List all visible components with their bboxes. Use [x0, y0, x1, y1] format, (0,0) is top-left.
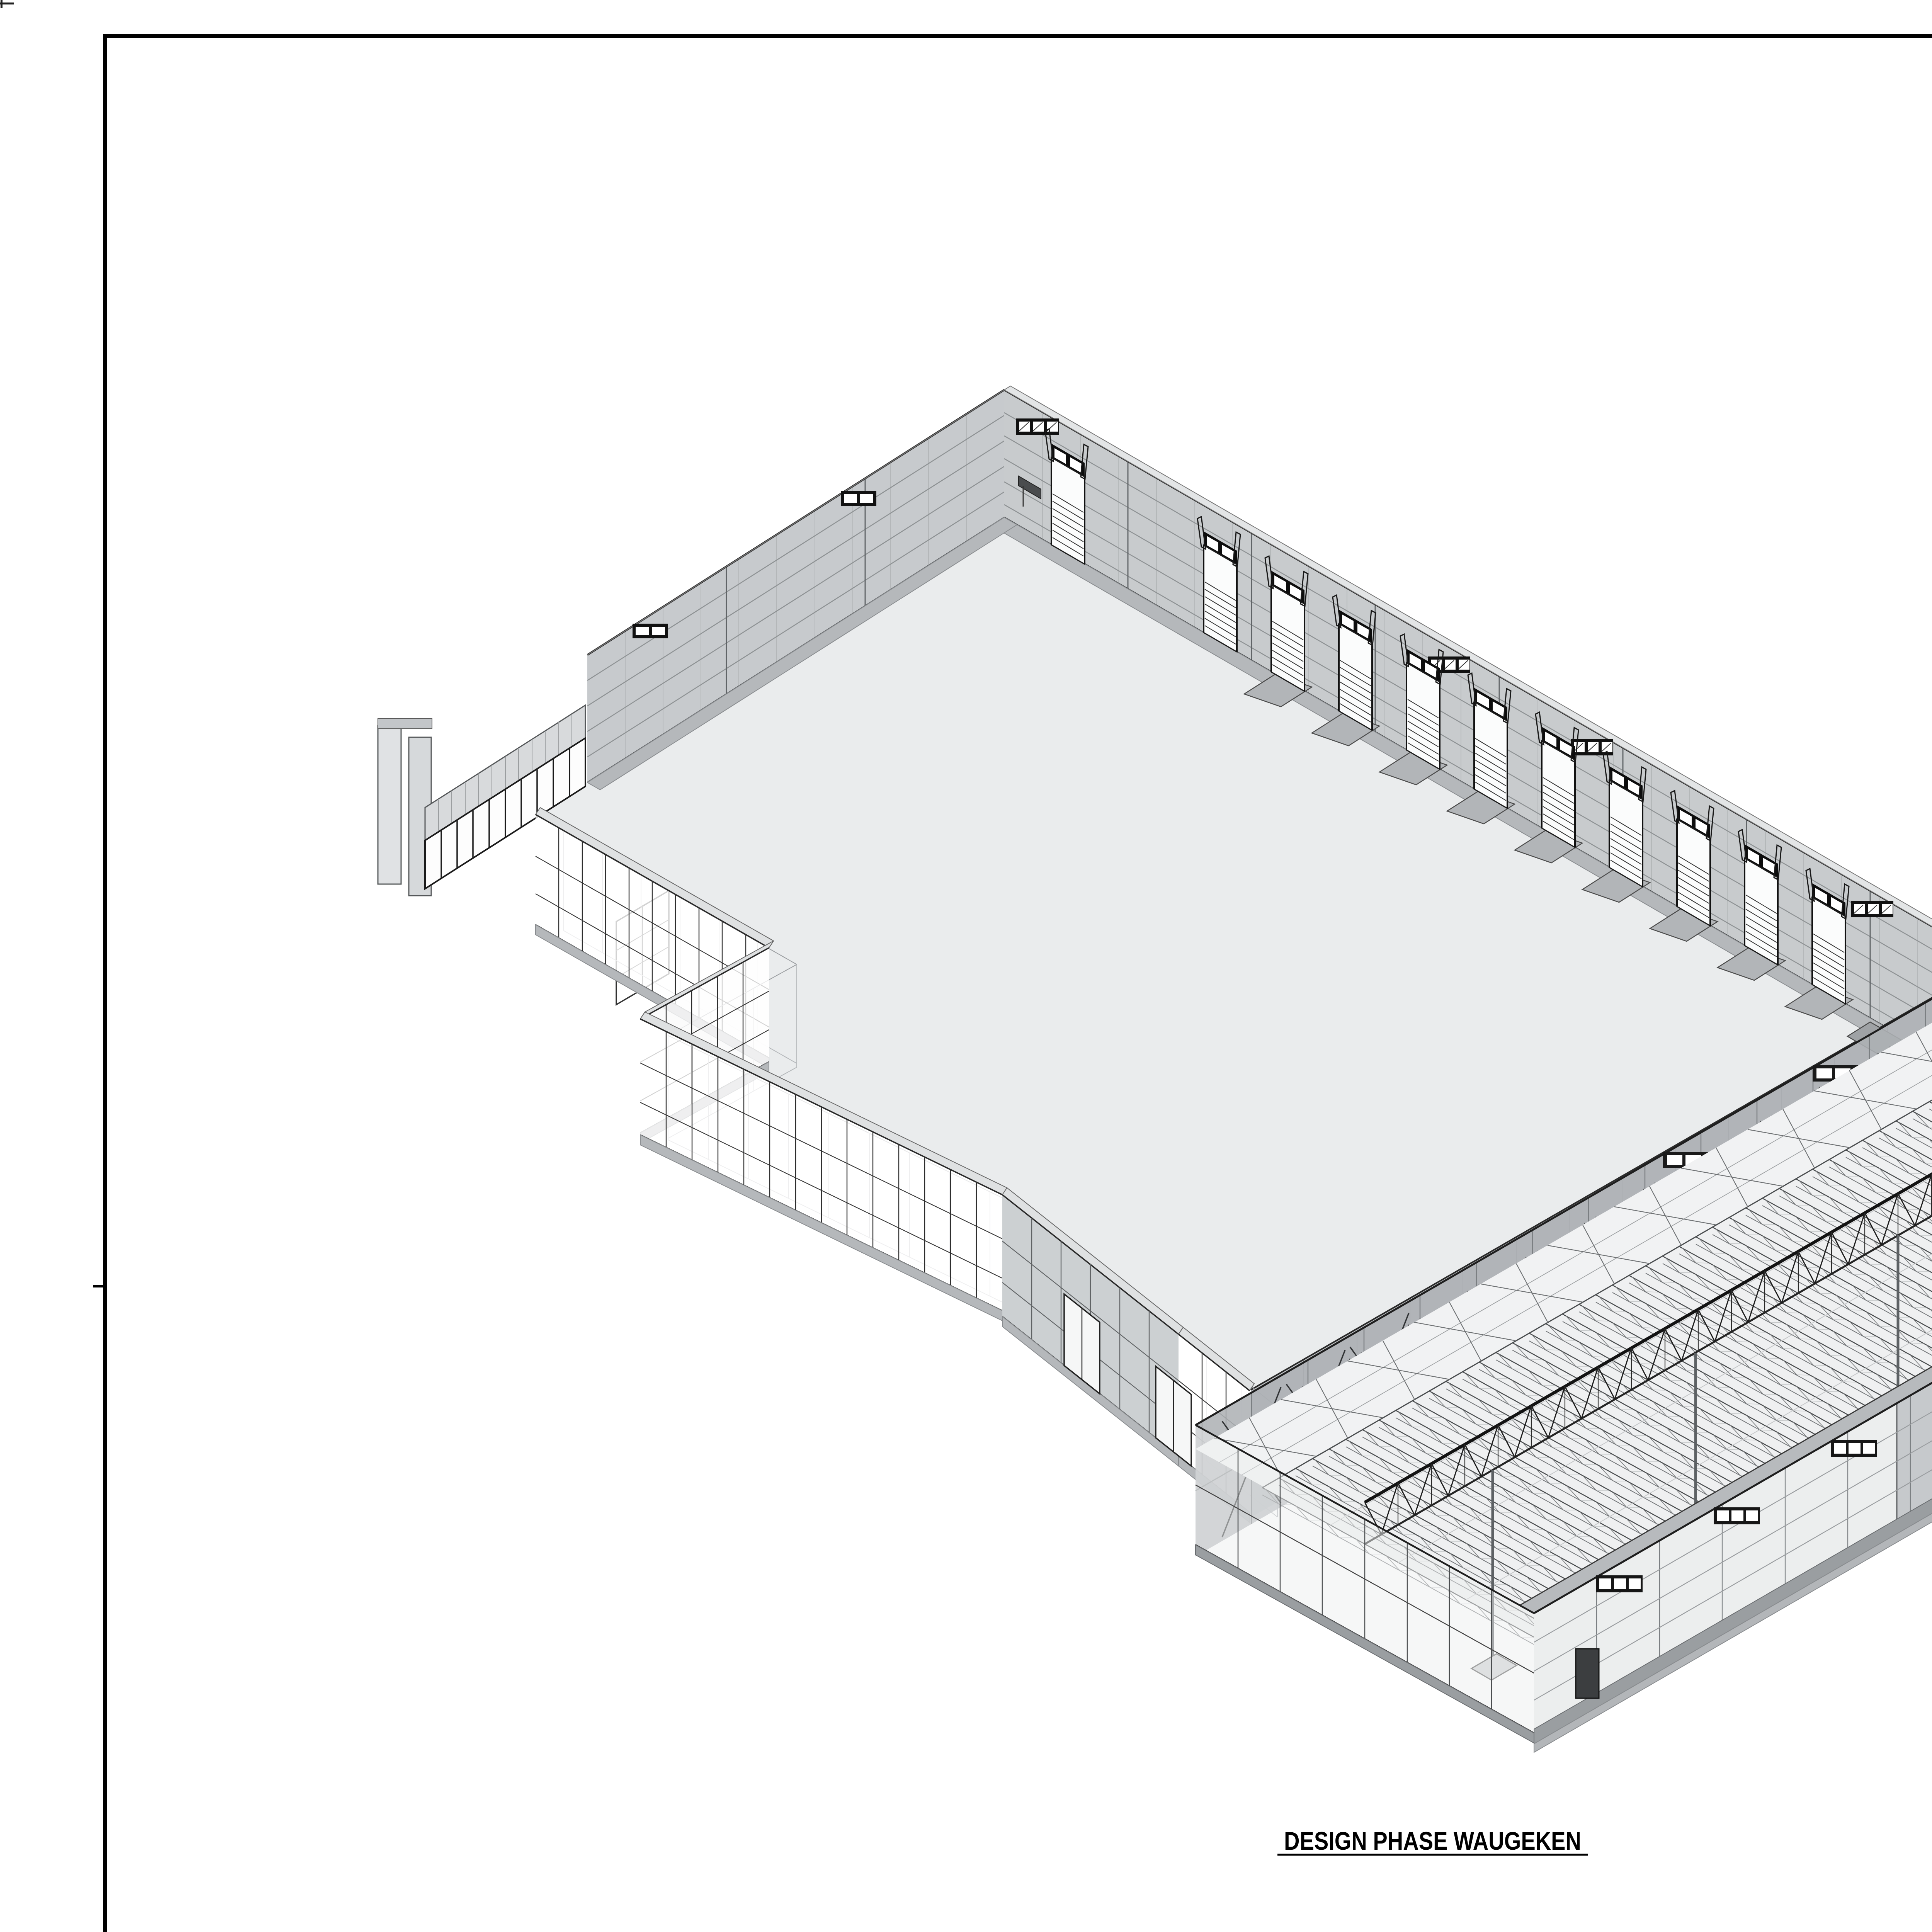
svg-text:DESIGN PHASE WAUGEKEN: DESIGN PHASE WAUGEKEN	[1284, 1827, 1581, 1855]
